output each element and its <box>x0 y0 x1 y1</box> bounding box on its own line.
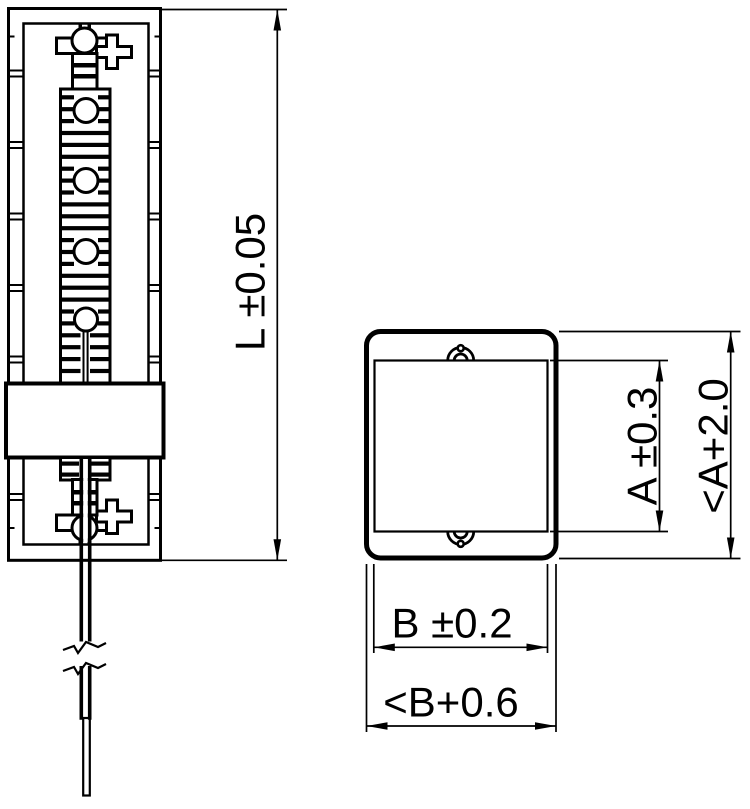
meander-rung <box>62 250 74 254</box>
wire-cross-section <box>458 345 464 351</box>
trim-circle <box>74 99 98 123</box>
meander-rung <box>62 298 109 302</box>
arrowhead-down <box>727 538 735 559</box>
side-outer-case <box>367 332 557 559</box>
meander-rung <box>62 309 74 313</box>
neck-rung <box>73 74 98 79</box>
arrowhead-right <box>527 644 548 652</box>
mounting-band <box>6 384 164 458</box>
arrowhead-up <box>274 10 282 31</box>
wire-bump-bottom <box>448 532 474 547</box>
arrowhead-down <box>274 539 282 560</box>
meander-rung <box>98 190 109 194</box>
meander-rung <box>98 250 109 254</box>
meander-rung <box>62 202 109 206</box>
meander-rung <box>62 321 74 325</box>
meander-rung <box>90 369 109 373</box>
pad-circle <box>72 28 97 53</box>
meander-rung <box>62 143 109 147</box>
dim-label-width-inner: B ±0.2 <box>391 600 512 647</box>
connection-pad-bottom <box>57 480 132 545</box>
lead-wire-edge <box>80 458 84 642</box>
pad-stub <box>79 25 83 30</box>
meander-rung <box>62 262 74 266</box>
meander-rung <box>62 190 74 194</box>
meander-rung <box>98 95 109 99</box>
arrowhead-up <box>656 361 664 382</box>
meander-rung <box>62 95 74 99</box>
dimension-height-inner: A ±0.3 <box>550 361 668 532</box>
meander-rung <box>98 107 109 111</box>
trim-circle <box>74 240 98 264</box>
meander-rung <box>62 345 81 349</box>
meander-rung <box>62 333 81 337</box>
inner-lead-line <box>87 330 89 384</box>
arrowhead-right <box>535 722 556 730</box>
pad-neck <box>73 54 98 90</box>
meander-rung <box>98 167 109 171</box>
side-inner-element <box>375 361 548 532</box>
arrowhead-down <box>656 511 664 532</box>
inner-lead-line <box>83 330 85 384</box>
element-side-view: A ±0.3 <A+2.0 B ±0.2 <B+0.6 <box>367 332 741 733</box>
meander-rung <box>98 321 109 325</box>
technical-drawing-page: L ±0.05 A ±0.3 <A <box>0 0 750 809</box>
technical-drawing: L ±0.05 A ±0.3 <A <box>0 0 750 809</box>
meander-rung <box>62 167 74 171</box>
trim-circle <box>75 308 98 331</box>
dimension-length: L ±0.05 <box>161 10 288 561</box>
meander-rung <box>98 309 109 313</box>
meander-rung <box>98 119 109 123</box>
trim-circle <box>74 169 98 193</box>
arrowhead-up <box>727 332 735 353</box>
dim-label-height-inner: A ±0.3 <box>619 387 666 506</box>
meander-rung <box>98 238 109 242</box>
meander-rung <box>90 345 109 349</box>
lead-wire-gap <box>83 461 88 543</box>
lead-wire-edge <box>88 666 92 719</box>
meander-rung <box>90 333 109 337</box>
meander-rung <box>62 226 109 230</box>
wire-cross-section <box>458 541 464 547</box>
neck-rung <box>73 63 98 68</box>
meander-rung <box>62 473 79 477</box>
meander-rung <box>62 107 74 111</box>
meander-rung <box>92 473 109 477</box>
dim-label-height-outer: <A+2.0 <box>690 378 737 513</box>
meander-rung <box>62 462 79 466</box>
meander-rung <box>62 214 109 218</box>
meander-rung <box>62 286 109 290</box>
dim-label-width-outer: <B+0.6 <box>383 679 518 726</box>
meander-rung <box>62 179 74 183</box>
meander-rung <box>98 179 109 183</box>
meander-rung <box>90 357 109 361</box>
pad-stub <box>88 25 92 30</box>
dimension-width-inner: B ±0.2 <box>374 564 548 653</box>
connection-pad-top <box>57 25 132 90</box>
meander-rung <box>98 262 109 266</box>
meander-rung <box>62 357 81 361</box>
break-mark <box>63 642 106 653</box>
break-mark <box>63 663 106 674</box>
wire-tip <box>83 718 90 796</box>
meander-rung <box>62 274 109 278</box>
meander-rung <box>62 369 81 373</box>
lead-wire-edge <box>88 458 92 642</box>
element-front-view: L ±0.05 <box>6 9 287 796</box>
meander-rung <box>62 238 74 242</box>
dim-label-length: L ±0.05 <box>227 213 274 351</box>
meander-rung <box>62 119 74 123</box>
meander-rung <box>62 155 109 159</box>
wire-bump-top <box>448 345 474 360</box>
meander-rung <box>62 131 109 135</box>
lead-wire-edge <box>80 666 84 719</box>
meander-rung <box>92 462 109 466</box>
